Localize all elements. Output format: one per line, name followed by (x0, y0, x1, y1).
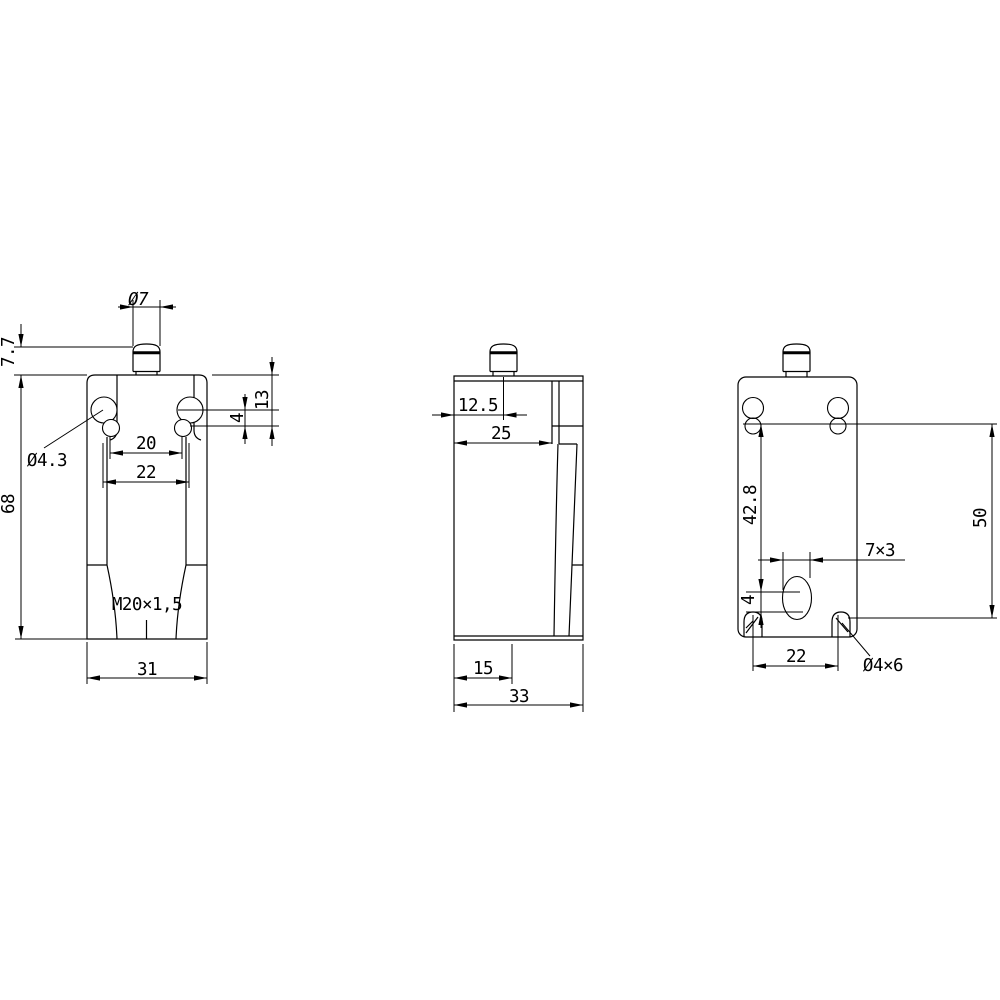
side-dim-head-depth: 25 (491, 424, 511, 444)
dimension-arrowhead (103, 479, 116, 484)
back-view: 42.8 50 4 7×3 22 Ø4×6 (738, 344, 997, 676)
back-keyhole-right-large (828, 398, 849, 419)
dimension-arrowhead (570, 702, 583, 707)
dimension-arrowhead (504, 412, 517, 417)
back-dim-wire-hole-depth: 42.8 (741, 485, 761, 525)
dimension-arrowhead (169, 450, 182, 455)
dimension-arrowhead (87, 675, 100, 680)
front-keyhole-left-small (103, 420, 120, 437)
dimension-arrowhead (18, 375, 23, 388)
front-dim-outer-span: 22 (136, 463, 156, 483)
dimension-arrowheads (18, 304, 994, 707)
drawing-canvas: Ø7 7.7 68 13 4 20 22 Ø4.3 M20×1,5 31 12.… (0, 0, 1000, 1000)
dimension-arrowhead (242, 426, 247, 439)
front-dim-body-height: 68 (0, 494, 19, 514)
front-dim-inner-span: 20 (136, 434, 156, 454)
back-keyhole-left-small (745, 418, 761, 434)
front-keyhole-left-large (91, 397, 117, 423)
dimension-arrowhead (18, 626, 23, 639)
front-view: Ø7 7.7 68 13 4 20 22 Ø4.3 M20×1,5 31 (0, 290, 279, 684)
dimension-arrowhead (176, 479, 189, 484)
dimension-arrowhead (810, 557, 823, 562)
back-dim-mount-vertical-span: 50 (971, 508, 991, 528)
back-wire-hole (783, 577, 812, 620)
dimension-arrowhead (825, 663, 838, 668)
dimension-arrowhead (753, 663, 766, 668)
dimension-arrowhead (454, 440, 467, 445)
back-dim-wire-slot-offset: 4 (739, 595, 759, 605)
front-dim-plunger-travel: 7.7 (0, 337, 19, 367)
dimension-arrowhead (770, 557, 783, 562)
dimension-arrowhead (194, 675, 207, 680)
dimension-arrowhead (160, 304, 173, 309)
technical-drawing: Ø7 7.7 68 13 4 20 22 Ø4.3 M20×1,5 31 12.… (0, 0, 1000, 1000)
back-dim-corner-slot-size: Ø4×6 (863, 656, 903, 676)
side-dim-body-depth: 33 (509, 687, 529, 707)
back-keyhole-left-large (743, 398, 764, 419)
front-dim-body-width: 31 (137, 660, 157, 680)
front-dim-slot-depth: 13 (253, 390, 273, 410)
side-view: 12.5 25 15 33 (432, 344, 583, 712)
dimension-arrowhead (110, 450, 123, 455)
dimension-arrowhead (454, 702, 467, 707)
back-dim-wire-slot-size: 7×3 (865, 541, 895, 561)
dimension-arrowhead (758, 579, 763, 592)
dimension-arrowhead (242, 397, 247, 410)
dimension-arrowhead (989, 605, 994, 618)
front-dim-conduit-thread: M20×1,5 (112, 595, 182, 615)
side-plate-profile (552, 381, 583, 636)
dimension-arrowhead (269, 426, 274, 439)
front-dim-slot-offset: 4 (228, 413, 248, 423)
dimension-arrowhead (18, 334, 23, 347)
side-plunger (490, 344, 517, 376)
dimension-arrowhead (539, 440, 552, 445)
front-dim-mount-hole-diameter: Ø4.3 (27, 451, 67, 471)
dimension-arrowhead (441, 412, 454, 417)
dimension-arrowhead (499, 675, 512, 680)
side-dim-conduit-axis-offset: 15 (473, 659, 493, 679)
back-dim-mount-horizontal-span: 22 (786, 647, 806, 667)
side-dim-plunger-axis-offset: 12.5 (458, 396, 498, 416)
dimension-arrowhead (989, 424, 994, 437)
back-plunger (783, 344, 810, 377)
dimension-arrowhead (269, 362, 274, 375)
dimension-arrowhead (454, 675, 467, 680)
back-keyhole-right-small (830, 418, 846, 434)
front-plunger (133, 344, 160, 375)
front-keyhole-right-small (175, 420, 192, 437)
